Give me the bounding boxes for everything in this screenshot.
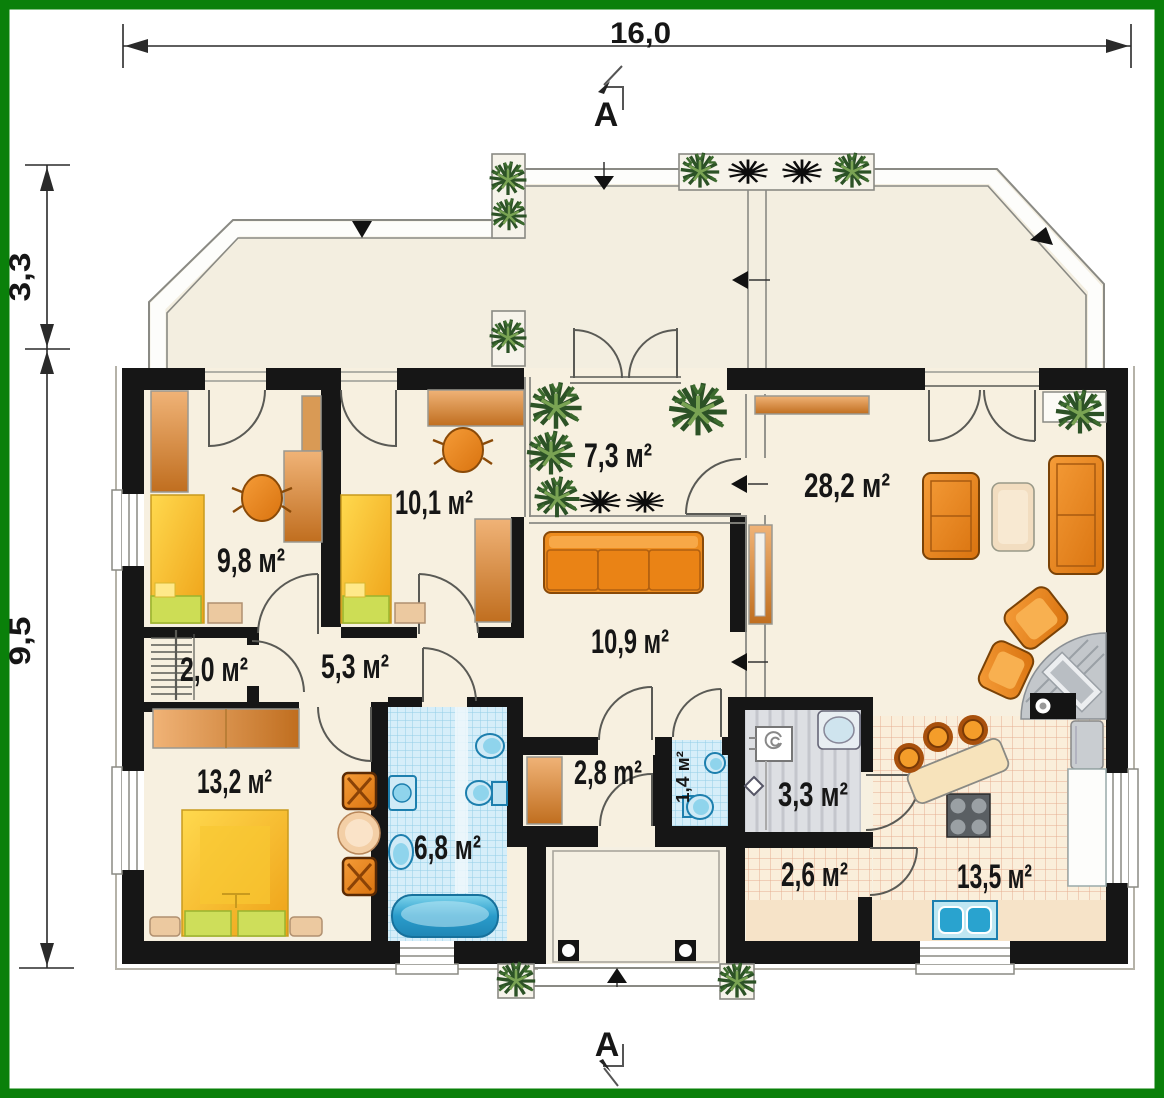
svg-text:3,3 м²: 3,3 м² <box>778 776 848 814</box>
svg-text:3,3: 3,3 <box>4 253 37 302</box>
svg-text:6,8 м²: 6,8 м² <box>414 829 481 867</box>
svg-text:2,6 м²: 2,6 м² <box>781 856 848 894</box>
svg-text:5,3 м²: 5,3 м² <box>321 648 389 686</box>
svg-text:10,1 м²: 10,1 м² <box>395 484 473 522</box>
svg-text:7,3 м²: 7,3 м² <box>584 437 652 475</box>
svg-text:2,0 м²: 2,0 м² <box>180 651 248 689</box>
svg-text:A: A <box>595 1026 620 1064</box>
svg-text:A: A <box>594 96 619 134</box>
svg-text:13,5 м²: 13,5 м² <box>957 858 1032 896</box>
svg-text:9,8 м²: 9,8 м² <box>217 542 285 580</box>
svg-text:9,5: 9,5 <box>4 617 37 666</box>
svg-text:10,9 м²: 10,9 м² <box>591 623 669 661</box>
svg-text:28,2 м²: 28,2 м² <box>804 467 890 505</box>
svg-text:13,2 м²: 13,2 м² <box>197 763 272 801</box>
svg-text:2,8 m²: 2,8 m² <box>574 754 642 792</box>
svg-text:1,4 м²: 1,4 м² <box>673 751 693 803</box>
svg-text:16,0: 16,0 <box>610 17 671 50</box>
